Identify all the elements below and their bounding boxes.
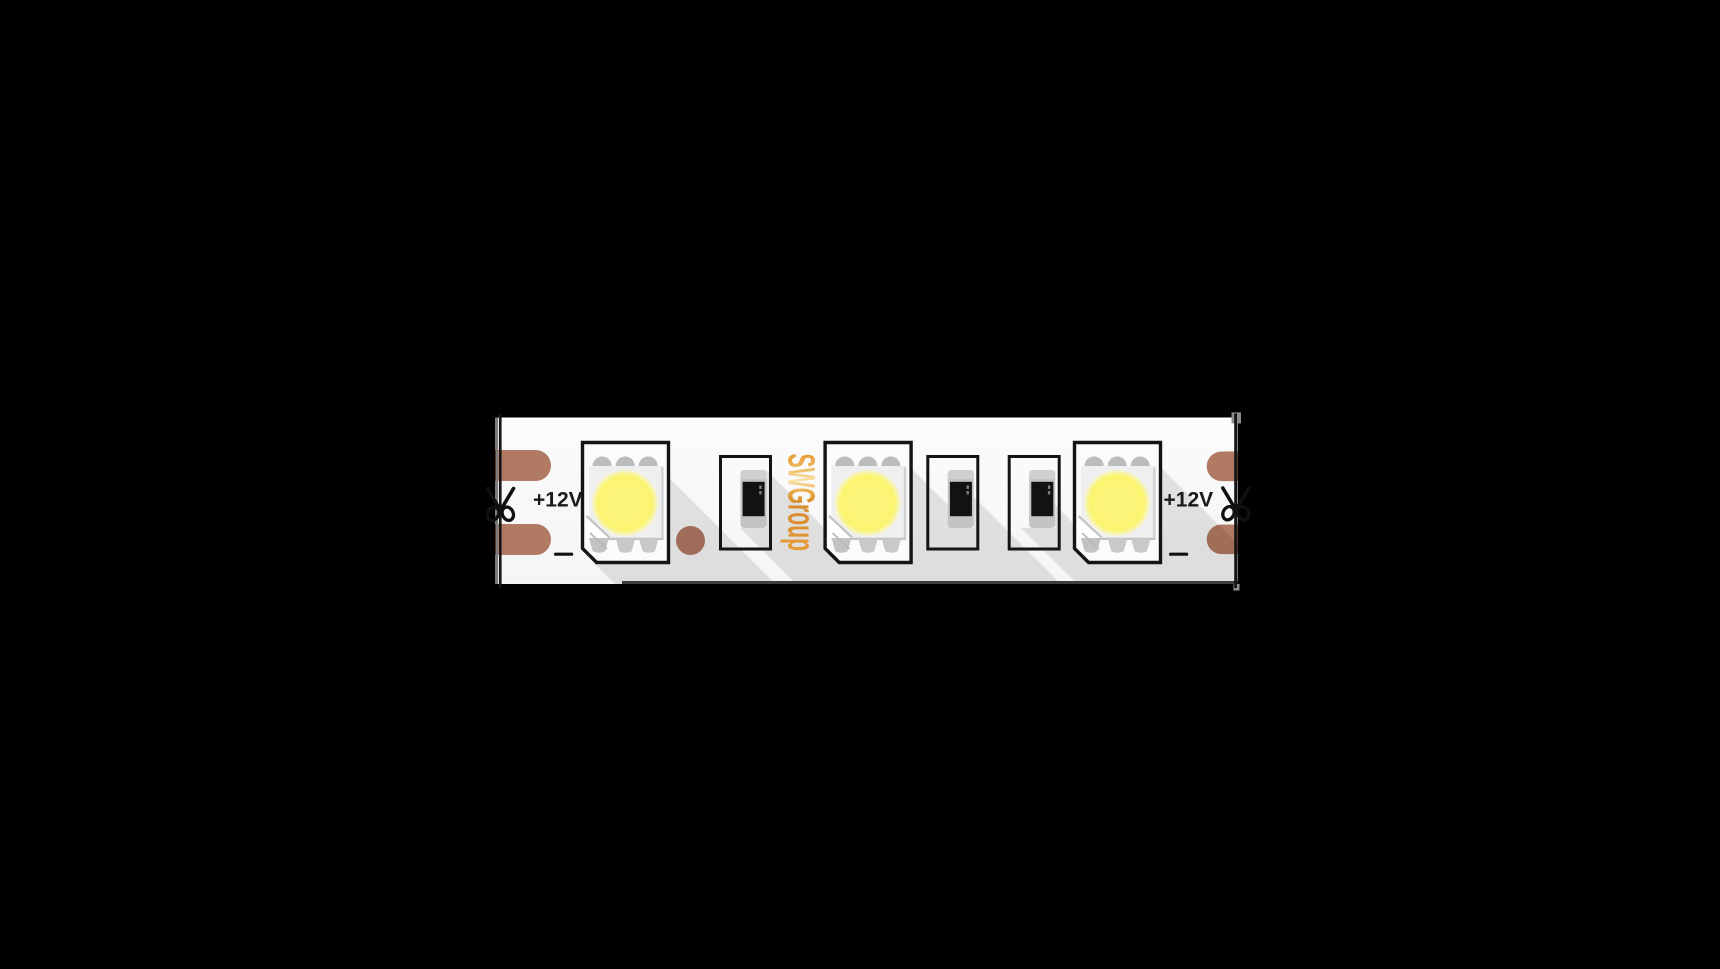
svg-text:+12V: +12V (1164, 489, 1214, 512)
svg-text:+12V: +12V (533, 489, 583, 512)
svg-text:SWGroup: SWGroup (780, 454, 822, 552)
